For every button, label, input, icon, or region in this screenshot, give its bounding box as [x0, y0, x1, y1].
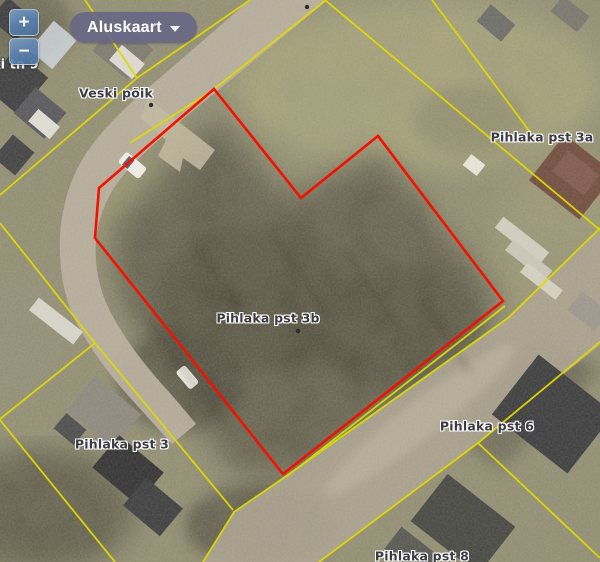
zoom-control: + − [9, 9, 39, 65]
basemap-dropdown-label: Aluskaart [87, 19, 162, 37]
chevron-down-icon [170, 26, 180, 32]
zoom-out-button[interactable]: − [9, 38, 39, 65]
map-viewport[interactable]: ki tn 9 Veski põik Pihlaka pst 3a Pihlak… [0, 0, 600, 562]
aerial-basemap [0, 0, 600, 562]
photo-grain-texture [0, 0, 600, 562]
basemap-dropdown-button[interactable]: Aluskaart [70, 12, 197, 43]
zoom-in-button[interactable]: + [9, 9, 39, 36]
